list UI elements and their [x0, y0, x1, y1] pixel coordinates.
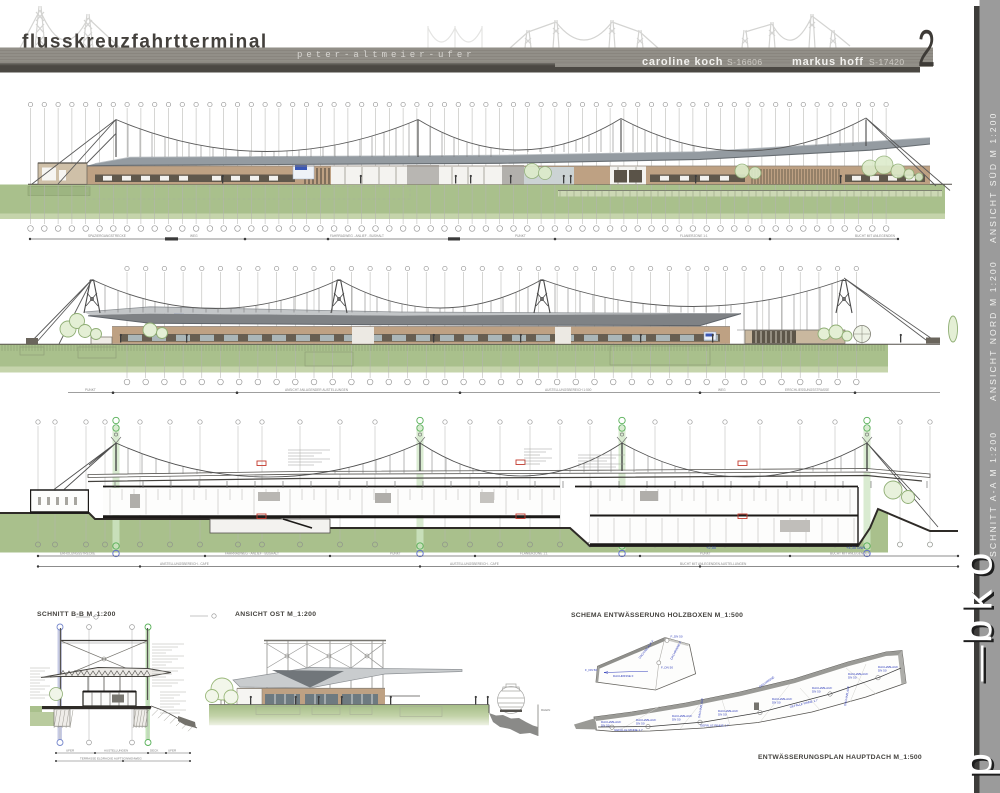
svg-text:ERSCHLIESSUNGSSTRASSE: ERSCHLIESSUNGSSTRASSE	[785, 388, 829, 392]
svg-text:ANSICHT OST M_1:200: ANSICHT OST M_1:200	[235, 611, 316, 618]
svg-text:ANSICHT NORD M 1:200: ANSICHT NORD M 1:200	[988, 260, 998, 401]
svg-text:ERHOLUNGSSTRECKE: ERHOLUNGSSTRECKE	[60, 551, 95, 555]
svg-text:DECK: DECK	[150, 749, 158, 753]
svg-text:PUNKT: PUNKT	[700, 551, 711, 555]
svg-text:SPAZIERGANGSTRECKE: SPAZIERGANGSTRECKE	[88, 234, 126, 238]
svg-text:PUNKT: PUNKT	[515, 234, 526, 238]
svg-text:FLANIERZONE 1:1: FLANIERZONE 1:1	[520, 551, 548, 555]
svg-text:UFER: UFER	[168, 749, 177, 753]
svg-text:S-16606: S-16606	[727, 57, 763, 67]
svg-text:caroline koch: caroline koch	[642, 56, 723, 68]
svg-text:ANSICHT SÜD M 1:200: ANSICHT SÜD M 1:200	[988, 112, 998, 243]
svg-text:F_DN 50: F_DN 50	[661, 666, 673, 670]
svg-text:DN 50: DN 50	[848, 676, 857, 680]
svg-text:ANSICHT ANLAGENDER AUSTELLUNGE: ANSICHT ANLAGENDER AUSTELLUNGEN	[285, 388, 349, 392]
svg-text:FLANIERZONE 1:1: FLANIERZONE 1:1	[680, 234, 708, 238]
svg-text:2: 2	[918, 20, 935, 78]
svg-text:peter-altmeier-ufer: peter-altmeier-ufer	[297, 50, 476, 60]
svg-text:UFER: UFER	[66, 749, 75, 753]
svg-text:ENTWÄSSERUNGSPLAN HAUPTDACH M: ENTWÄSSERUNGSPLAN HAUPTDACH M_1:500	[758, 753, 922, 761]
svg-text:ANSTELLUNGSBEREICH - CAFE: ANSTELLUNGSBEREICH - CAFE	[160, 562, 209, 566]
svg-text:RHEIN: RHEIN	[541, 708, 550, 712]
svg-text:F_DN 50: F_DN 50	[671, 635, 683, 639]
svg-text:WEG: WEG	[190, 234, 198, 238]
svg-text:DN 50: DN 50	[672, 718, 681, 722]
svg-text:k: k	[954, 589, 1000, 611]
svg-text:BUCHT MIT ANLEGENDEN AUSTELLUN: BUCHT MIT ANLEGENDEN AUSTELLUNGEN	[680, 562, 747, 566]
svg-text:PUNKT: PUNKT	[85, 388, 96, 392]
svg-text:F_DN 50: F_DN 50	[585, 668, 597, 672]
svg-text:SCHNITT A-A M 1:200: SCHNITT A-A M 1:200	[988, 431, 998, 557]
svg-text:DN 50: DN 50	[812, 690, 821, 694]
svg-text:DN 50: DN 50	[601, 724, 610, 728]
svg-text:b: b	[954, 620, 1000, 643]
svg-text:TERRASSE ELDRACKE AUFTSONNENWE: TERRASSE ELDRACKE AUFTSONNENWEG	[80, 757, 142, 761]
svg-text:BUCHT MIT ANLEGENDEN: BUCHT MIT ANLEGENDEN	[855, 234, 896, 238]
svg-text:FAHRRADWEG - ANLIEF - BUSHALT: FAHRRADWEG - ANLIEF - BUSHALT	[225, 551, 279, 555]
svg-text:DN 50: DN 50	[718, 713, 727, 717]
svg-text:p: p	[954, 753, 1000, 776]
svg-text:+4,30 üNN: +4,30 üNN	[846, 545, 865, 550]
svg-text:BUCHT MIT ANLEGENDEN: BUCHT MIT ANLEGENDEN	[830, 551, 871, 555]
svg-text:markus hoff: markus hoff	[792, 56, 864, 68]
svg-text:DN 50: DN 50	[636, 722, 645, 726]
svg-text:PUNKT: PUNKT	[390, 551, 401, 555]
svg-text:AUSTELLUNGSBEREICH 1:500: AUSTELLUNGSBEREICH 1:500	[545, 388, 592, 392]
svg-text:AUSTELLUNGEN: AUSTELLUNGEN	[104, 749, 128, 753]
svg-text:DN 50: DN 50	[878, 669, 887, 673]
svg-text:FAHRRADWEG - ANLIEF - BUSHALT: FAHRRADWEG - ANLIEF - BUSHALT	[330, 234, 384, 238]
svg-text:+2,50: +2,50	[706, 545, 717, 550]
svg-text:DN 50: DN 50	[772, 701, 781, 705]
svg-text:GEFÄLLE RINNE 1.7: GEFÄLLE RINNE 1.7	[700, 724, 729, 728]
svg-text:AUSTELLUNGSBEREICH - CAFE: AUSTELLUNGSBEREICH - CAFE	[450, 562, 499, 566]
svg-text:o: o	[954, 553, 1000, 576]
svg-text:GEFÄLLE RINNE 1.7: GEFÄLLE RINNE 1.7	[614, 728, 643, 732]
svg-text:S-17420: S-17420	[869, 57, 905, 67]
svg-text:flusskreuzfahrtterminal: flusskreuzfahrtterminal	[22, 32, 268, 53]
svg-text:SCHEMA ENTWÄSSERUNG HOLZBOXEN: SCHEMA ENTWÄSSERUNG HOLZBOXEN M_1:500	[571, 611, 743, 619]
svg-text:DACHRINNE F: DACHRINNE F	[613, 674, 634, 678]
svg-text:—: —	[959, 646, 1000, 682]
svg-text:WEG: WEG	[718, 388, 726, 392]
